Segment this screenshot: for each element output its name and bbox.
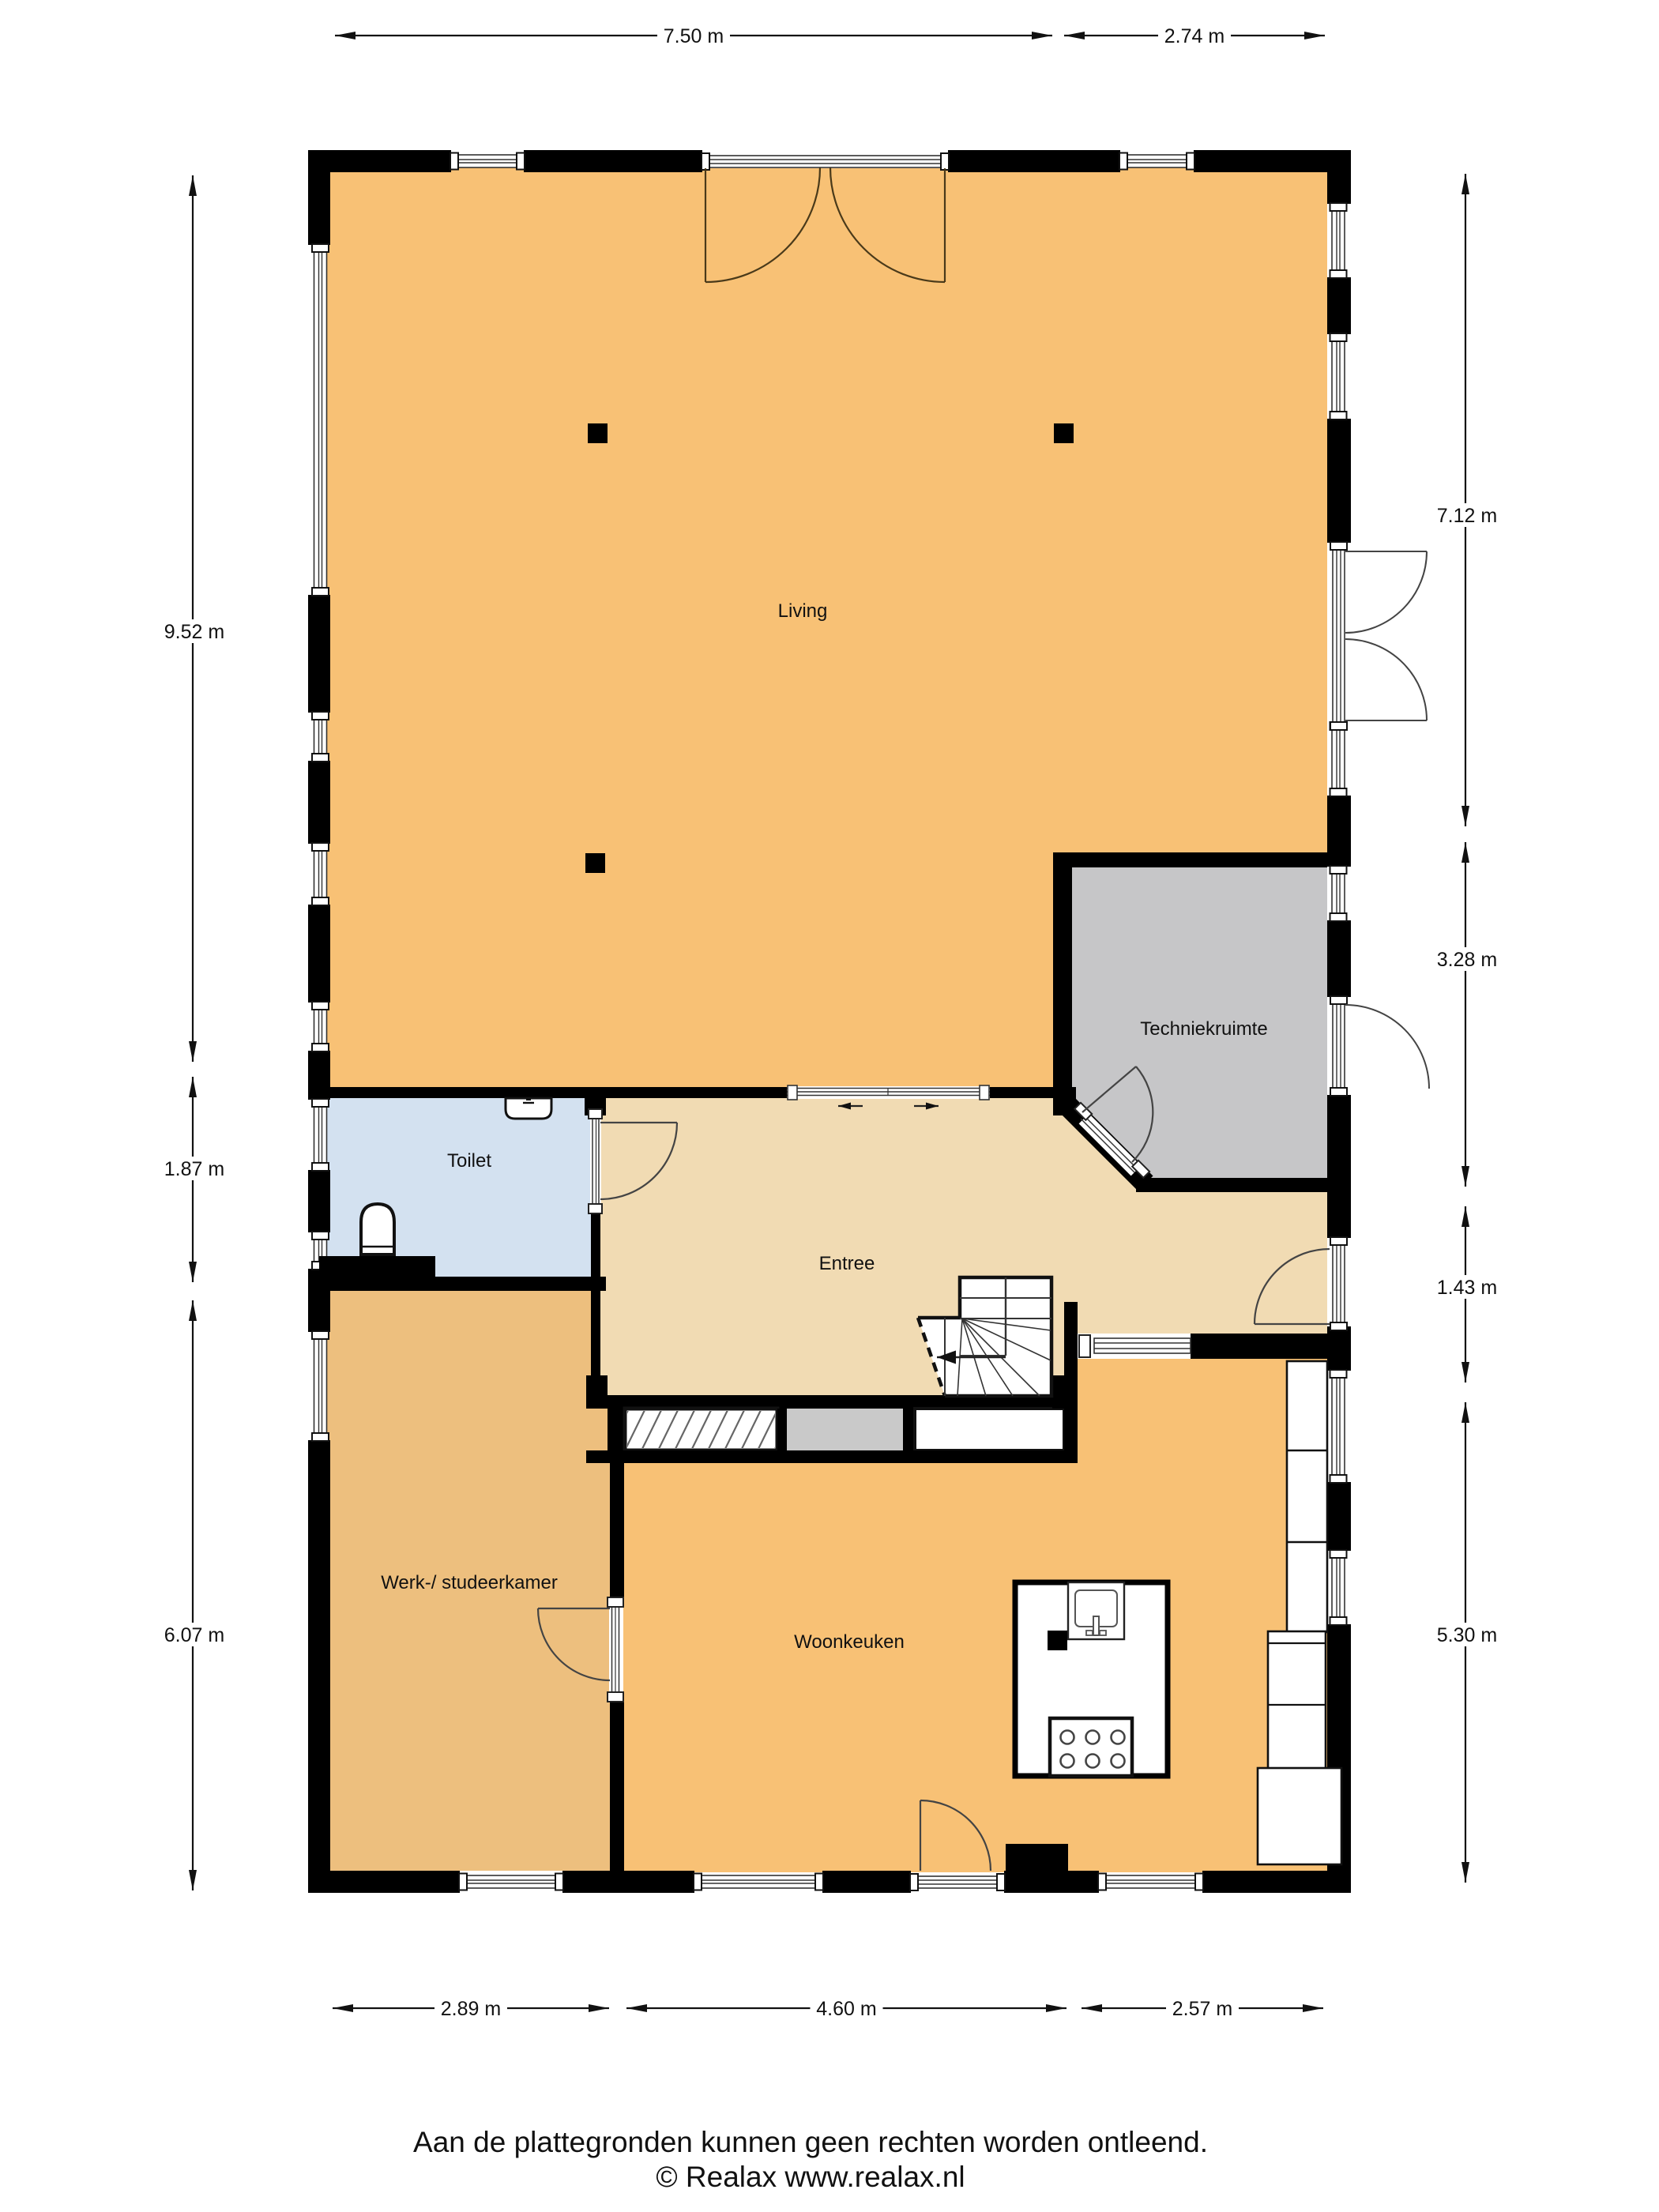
svg-text:Werk-/ studeerkamer: Werk-/ studeerkamer xyxy=(381,1572,558,1593)
svg-text:Aan de plattegronden kunnen ge: Aan de plattegronden kunnen geen rechten… xyxy=(413,2126,1208,2158)
svg-text:2.74 m: 2.74 m xyxy=(1164,25,1224,47)
svg-text:5.30 m: 5.30 m xyxy=(1437,1624,1497,1646)
svg-text:Entree: Entree xyxy=(819,1253,875,1274)
svg-text:2.89 m: 2.89 m xyxy=(441,1998,501,2020)
svg-text:7.12 m: 7.12 m xyxy=(1437,505,1497,527)
svg-text:Toilet: Toilet xyxy=(447,1150,491,1172)
svg-text:© Realax www.realax.nl: © Realax www.realax.nl xyxy=(656,2161,965,2193)
svg-text:Living: Living xyxy=(778,600,828,622)
svg-text:Woonkeuken: Woonkeuken xyxy=(794,1631,905,1653)
svg-text:2.57 m: 2.57 m xyxy=(1172,1998,1232,2020)
svg-text:9.52 m: 9.52 m xyxy=(164,621,224,643)
svg-text:Techniekruimte: Techniekruimte xyxy=(1140,1018,1267,1040)
svg-text:6.07 m: 6.07 m xyxy=(164,1624,224,1646)
svg-text:4.60 m: 4.60 m xyxy=(816,1998,876,2020)
svg-text:1.43 m: 1.43 m xyxy=(1437,1277,1497,1299)
svg-text:1.87 m: 1.87 m xyxy=(164,1158,224,1180)
svg-text:3.28 m: 3.28 m xyxy=(1437,949,1497,971)
svg-text:7.50 m: 7.50 m xyxy=(664,25,724,47)
